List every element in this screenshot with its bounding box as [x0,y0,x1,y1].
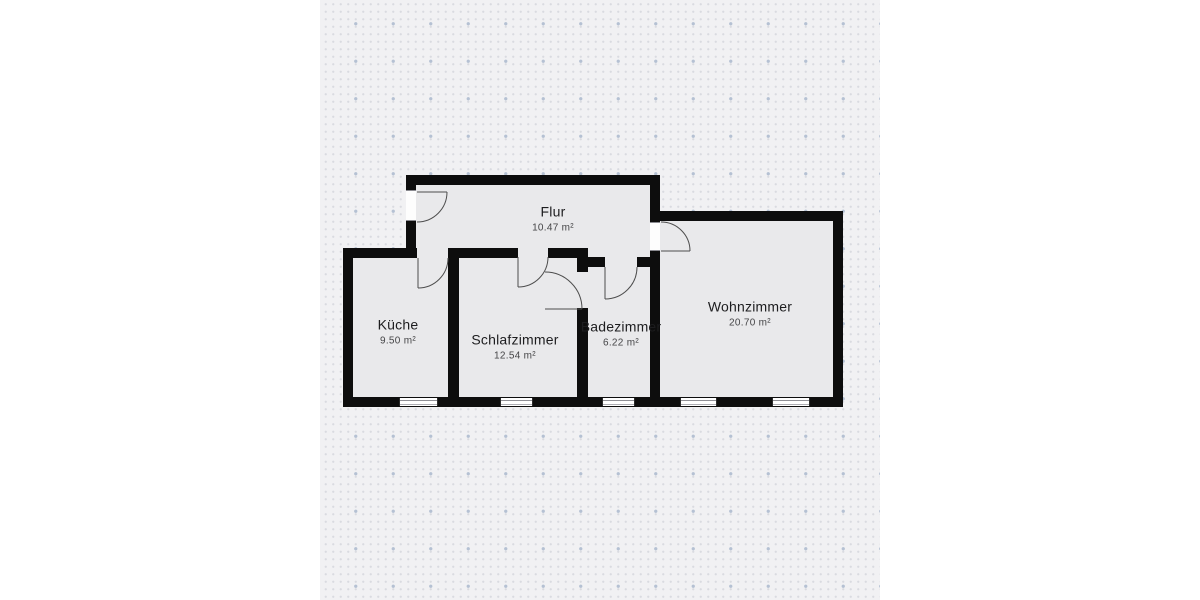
opening-wohnzimmer [650,222,660,251]
window-schlafzimmer[interactable] [500,398,533,406]
window-wohnzimmer-left[interactable] [680,398,717,406]
page-background: Flur 10.47 m² Küche 9.50 m² Schlafzimmer… [0,0,1200,600]
wall-right-outer[interactable] [833,211,843,407]
wall-flur-wohnzimmer[interactable] [650,175,660,407]
room-flur[interactable] [416,185,650,257]
wall-kueche-left[interactable] [343,248,353,407]
floor-plan: Flur 10.47 m² Küche 9.50 m² Schlafzimmer… [0,0,1200,600]
opening-badezimmer [605,257,637,267]
room-badezimmer[interactable] [588,267,650,397]
wall-flur-top[interactable] [406,175,660,185]
floorplan-canvas[interactable]: Flur 10.47 m² Küche 9.50 m² Schlafzimmer… [320,0,880,600]
room-kueche[interactable] [353,258,448,397]
room-schlafzimmer[interactable] [459,258,577,397]
window-kueche[interactable] [399,398,438,406]
wall-kueche-schlafzimmer[interactable] [448,248,459,407]
window-badezimmer[interactable] [602,398,635,406]
room-wohnzimmer[interactable] [660,221,833,397]
wall-wohnzimmer-top[interactable] [650,211,843,221]
opening-entrance [406,190,416,221]
window-wohnzimmer-right[interactable] [772,398,810,406]
opening-schlafzimmer-badezimmer [577,272,588,308]
